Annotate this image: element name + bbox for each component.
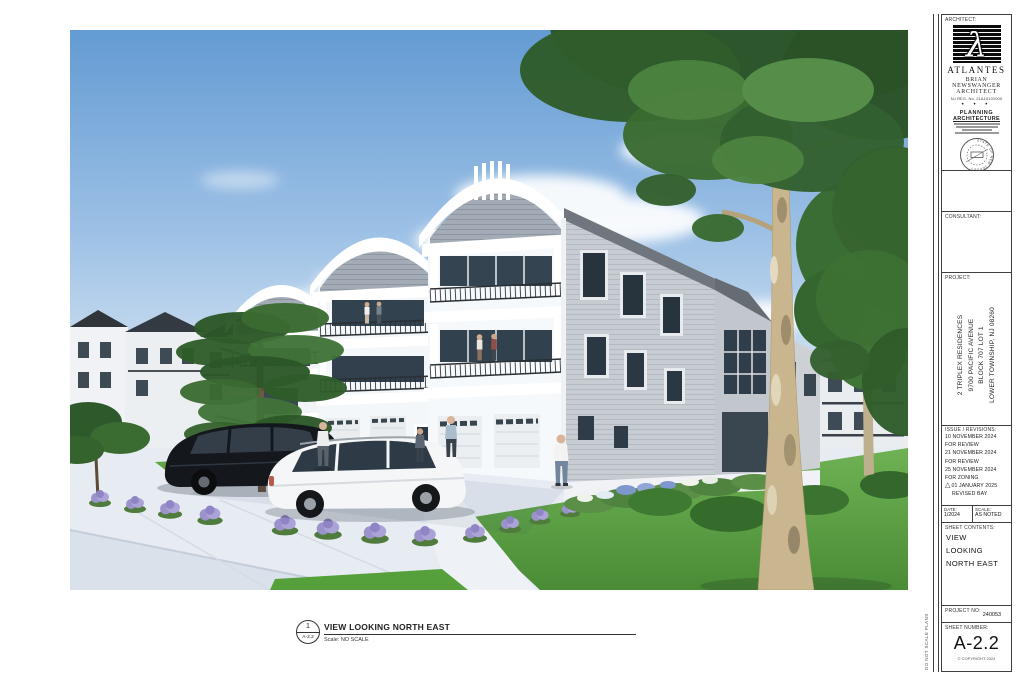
revision-delta-icon: △ bbox=[945, 482, 950, 490]
project-info-rotated: 2 TRIPLEX RESIDENCES 9700 PACIFIC AVENUE… bbox=[956, 282, 998, 426]
date-cell: DATE: 1/2024 bbox=[942, 506, 973, 522]
separator-dots: • • • bbox=[942, 102, 1011, 108]
architect-address-illegible bbox=[955, 132, 999, 134]
architect-registration: NJ REG. No. 21A10101000 bbox=[942, 96, 1011, 101]
sheet-contents-line: NORTH EAST bbox=[942, 557, 1011, 570]
project-section: PROJECT: 2 TRIPLEX RESIDENCES 9700 PACIF… bbox=[941, 272, 1012, 426]
revision-entry: FOR REVIEW bbox=[942, 441, 1011, 449]
revision-entry: FOR ZONING bbox=[942, 474, 1011, 482]
svg-text:STATE OF NEW JERSEY: STATE OF NEW JERSEY bbox=[969, 138, 993, 171]
view-scale: Scale: NO SCALE bbox=[324, 637, 636, 643]
detail-sheet-ref: A-2.2 bbox=[297, 633, 319, 642]
titleblock: ARCHITECT: λ ATLANTES BRIAN NEWSWANGER A… bbox=[941, 14, 1012, 672]
atlantes-logo: λ bbox=[953, 25, 1001, 63]
revision-entry: REVISED BAY bbox=[942, 490, 1011, 498]
architectural-rendering bbox=[70, 30, 908, 590]
scale-cell: SCALE: AS NOTED bbox=[973, 506, 1011, 522]
revisions-label: ISSUE / REVISIONS: bbox=[942, 426, 1011, 433]
architect-address-illegible bbox=[954, 123, 1000, 125]
date-value: 1/2024 bbox=[942, 512, 972, 518]
firm-name: ATLANTES bbox=[942, 65, 1011, 75]
architect-name: BRIAN NEWSWANGER bbox=[942, 77, 1011, 89]
revision-entry: FOR REVIEW bbox=[942, 458, 1011, 466]
sheet-contents-label: SHEET CONTENTS: bbox=[942, 523, 1011, 531]
project-line: LOWER TOWNSHIP, NJ 08260 bbox=[987, 282, 998, 426]
seal-text: STATE OF NEW JERSEY bbox=[969, 138, 993, 171]
view-title-rule bbox=[324, 634, 636, 635]
do-not-scale-note: DO NOT SCALE PLANS bbox=[924, 592, 933, 670]
view-title-block: 1 A-2.2 VIEW LOOKING NORTH EAST Scale: N… bbox=[296, 620, 636, 644]
project-line: 2 TRIPLEX RESIDENCES bbox=[956, 282, 967, 426]
architect-title: ARCHITECT bbox=[942, 89, 1011, 95]
detail-number: 1 bbox=[297, 621, 319, 633]
architect-address-illegible bbox=[956, 126, 998, 128]
detail-callout-bubble: 1 A-2.2 bbox=[296, 620, 320, 644]
lambda-logo-icon: λ bbox=[953, 25, 1001, 63]
architect-section: ARCHITECT: λ ATLANTES BRIAN NEWSWANGER A… bbox=[941, 14, 1012, 171]
revision-entry: 25 NOVEMBER 2024 bbox=[942, 466, 1011, 474]
sheet-contents-line: VIEW bbox=[942, 531, 1011, 544]
view-title-text: VIEW LOOKING NORTH EAST Scale: NO SCALE bbox=[324, 622, 636, 643]
revision-date: 01 JANUARY 2025 bbox=[951, 482, 997, 490]
consultant-label: CONSULTANT: bbox=[942, 212, 1011, 220]
date-scale-section: DATE: 1/2024 SCALE: AS NOTED bbox=[941, 505, 1012, 523]
sheet-contents-section: SHEET CONTENTS: VIEW LOOKING NORTH EAST bbox=[941, 522, 1012, 606]
sheet-number-section: SHEET NUMBER: A-2.2 © COPYRIGHT 2024 bbox=[941, 622, 1012, 672]
titleblock-double-rule bbox=[933, 14, 939, 672]
view-title: VIEW LOOKING NORTH EAST bbox=[324, 622, 636, 632]
project-line: BLOCK 707 LOT 1 bbox=[977, 282, 988, 426]
rendering-svg bbox=[70, 30, 908, 590]
practice-line-2: ARCHITECTURE bbox=[942, 116, 1011, 122]
architect-label: ARCHITECT: bbox=[942, 15, 1011, 23]
project-line: 9700 PACIFIC AVENUE bbox=[966, 282, 977, 426]
sheet-contents-line: LOOKING bbox=[942, 544, 1011, 557]
revision-entry: △ 01 JANUARY 2025 bbox=[942, 482, 1011, 490]
architect-seal: STATE OF NEW JERSEY bbox=[958, 136, 996, 171]
blank-seal-box bbox=[941, 170, 1012, 212]
architect-address-illegible bbox=[962, 129, 992, 131]
project-label: PROJECT: bbox=[942, 273, 1011, 281]
consultant-section: CONSULTANT: bbox=[941, 211, 1012, 273]
project-no-label: PROJECT NO: bbox=[942, 606, 981, 614]
project-no-value: 240053 bbox=[983, 612, 1001, 618]
sheet-number-value: A-2.2 bbox=[942, 633, 1011, 654]
revision-entry: 21 NOVEMBER 2024 bbox=[942, 449, 1011, 457]
revisions-section: ISSUE / REVISIONS: 10 NOVEMBER 2024 FOR … bbox=[941, 425, 1012, 506]
sheet-number-label: SHEET NUMBER: bbox=[942, 623, 1011, 631]
scale-value: AS NOTED bbox=[973, 512, 1011, 518]
revision-entry: 10 NOVEMBER 2024 bbox=[942, 433, 1011, 441]
copyright-note: © COPYRIGHT 2024 bbox=[942, 656, 1011, 661]
project-no-section: PROJECT NO: 240053 bbox=[941, 605, 1012, 623]
